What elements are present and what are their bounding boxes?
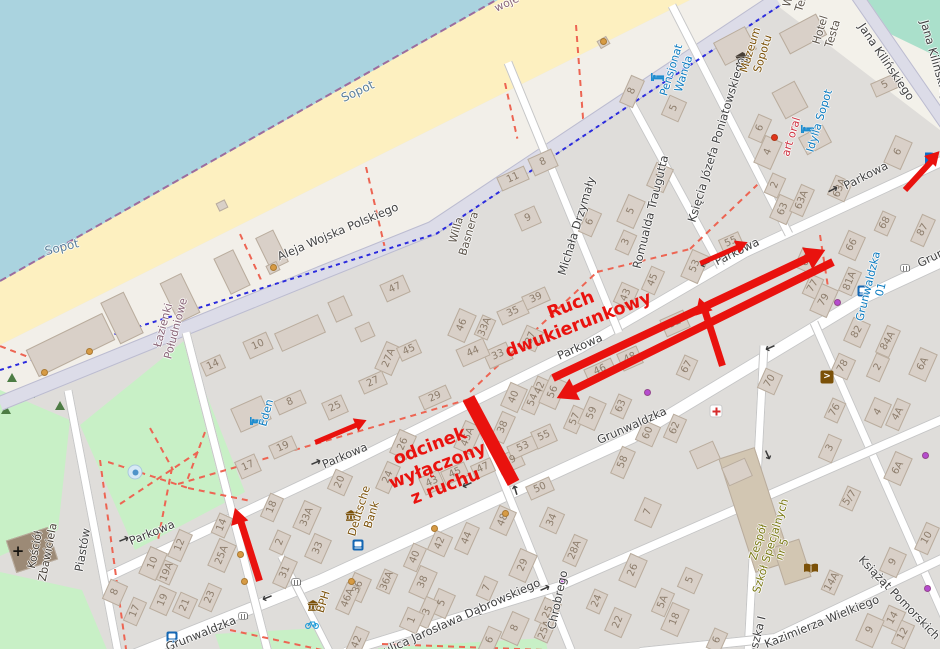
poi-dot: [771, 134, 778, 141]
crossing-stripe: [300, 580, 302, 585]
label-chrobrego: Chrobrego: [545, 569, 570, 630]
bus-glyph: [355, 542, 362, 547]
crossing-icon: [291, 578, 301, 586]
cross-h: [712, 410, 721, 413]
poi-dot: [348, 578, 355, 585]
poi-dot: [922, 452, 929, 459]
bus-wheels: [355, 547, 362, 549]
fountain-icon: [128, 465, 143, 480]
crossing-stripe: [903, 266, 905, 271]
crossing-icon: [900, 264, 910, 272]
crossing-stripe: [297, 580, 299, 585]
crossing-icon: [238, 612, 248, 620]
poi-dot: [241, 578, 248, 585]
traffic-direction-arrow: [700, 297, 722, 366]
crossing-stripe: [906, 266, 908, 271]
fountain-center: [133, 470, 139, 476]
poi-dot: [644, 389, 651, 396]
tree-icon: [7, 373, 17, 382]
poi-dot: [834, 299, 841, 306]
building: [274, 314, 326, 352]
crossing-stripe: [909, 266, 911, 271]
redcross-icon: [710, 405, 723, 418]
poi-dot: [270, 264, 277, 271]
crossing-stripe: [244, 614, 246, 619]
building: [354, 321, 375, 342]
building: [327, 295, 352, 322]
poi-dot: [502, 510, 509, 517]
label-bph: BPH: [315, 589, 334, 614]
crossing-stripe: [241, 614, 243, 619]
arrow-head: [691, 295, 713, 316]
poi-dot: [41, 369, 48, 376]
crossing-stripe: [294, 580, 296, 585]
bus-icon: [353, 540, 364, 551]
crossing-stripe: [247, 614, 249, 619]
poi-dot: [431, 525, 438, 532]
poi-dot: [924, 585, 931, 592]
building: [689, 441, 721, 470]
kiosk-icon: >: [821, 371, 834, 384]
building: [771, 81, 808, 120]
tree-icon: [55, 401, 65, 410]
label-piast-w: Piastów: [73, 527, 94, 573]
poi-dot: [86, 348, 93, 355]
map-canvas[interactable]: P>+ 14108252727A45472917194633A333537394…: [0, 0, 940, 649]
poi-dot: [237, 551, 244, 558]
church-icon: +: [12, 542, 25, 560]
poi-dot: [600, 38, 607, 45]
label-deutsche-bank: Deutsche Bank: [346, 484, 385, 541]
